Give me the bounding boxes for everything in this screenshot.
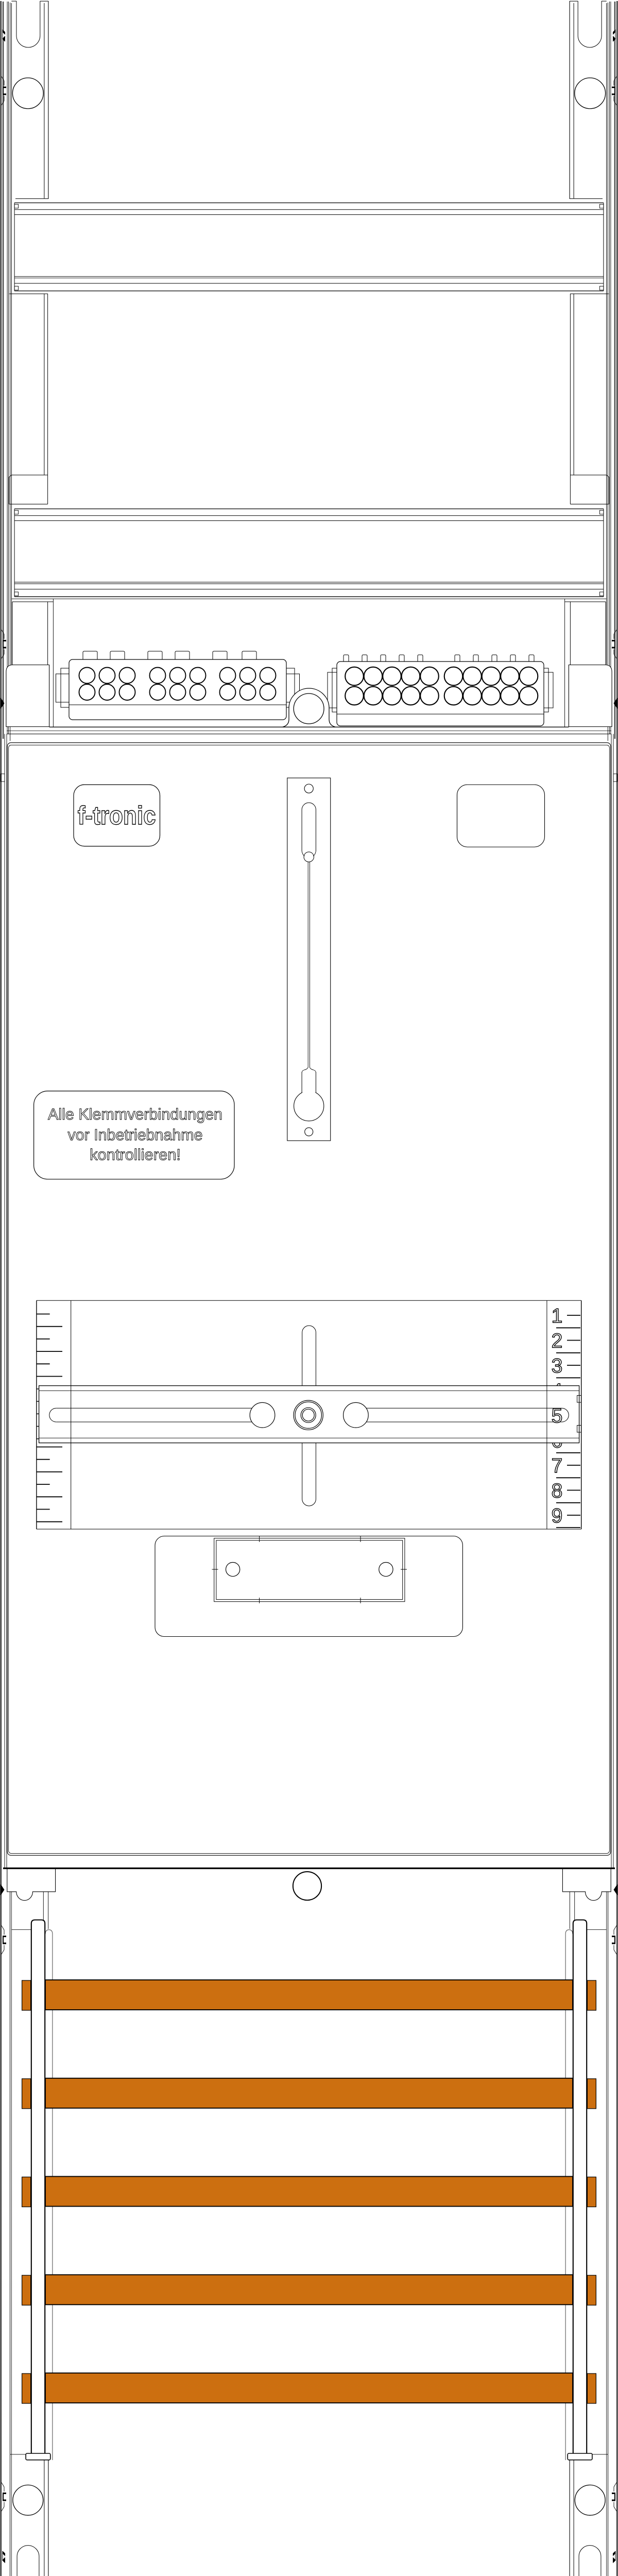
- svg-text:vor Inbetriebnahme: vor Inbetriebnahme: [68, 1126, 203, 1144]
- svg-text:1: 1: [552, 1305, 563, 1327]
- svg-text:7: 7: [552, 1455, 563, 1477]
- svg-text:8: 8: [552, 1480, 563, 1502]
- svg-text:5: 5: [552, 1405, 563, 1427]
- svg-text:3: 3: [552, 1355, 563, 1377]
- svg-text:9: 9: [552, 1505, 563, 1527]
- svg-text:kontrollieren!: kontrollieren!: [90, 1146, 181, 1164]
- svg-text:Alle Klemmverbindungen: Alle Klemmverbindungen: [48, 1105, 222, 1123]
- svg-text:f-tronic: f-tronic: [78, 801, 156, 830]
- svg-text:2: 2: [552, 1330, 563, 1352]
